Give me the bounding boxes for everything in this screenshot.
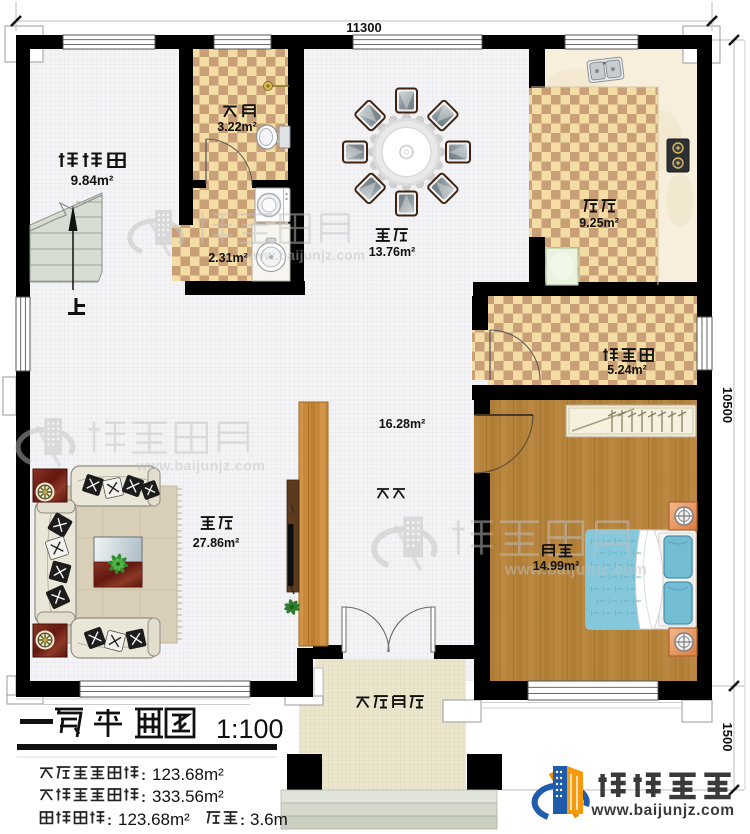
svg-text::: : xyxy=(141,789,146,806)
svg-text:9.84m²: 9.84m² xyxy=(71,173,114,188)
svg-text:13.76m²: 13.76m² xyxy=(369,245,416,259)
svg-text:3.6m: 3.6m xyxy=(250,810,288,829)
svg-text::: : xyxy=(107,812,112,829)
svg-text:3.22m²: 3.22m² xyxy=(217,120,257,134)
svg-text:1:100: 1:100 xyxy=(216,714,284,744)
svg-text:123.68m²: 123.68m² xyxy=(152,765,224,784)
svg-text:9.25m²: 9.25m² xyxy=(579,216,619,230)
svg-text::: : xyxy=(240,812,245,829)
svg-text::: : xyxy=(141,767,146,784)
svg-text:14.99m²: 14.99m² xyxy=(533,559,580,573)
svg-text:10500: 10500 xyxy=(720,387,735,423)
svg-text:123.68m²: 123.68m² xyxy=(118,810,190,829)
svg-text:5.24m²: 5.24m² xyxy=(607,363,647,377)
svg-text:16.28m²: 16.28m² xyxy=(379,417,426,431)
svg-text:11300: 11300 xyxy=(346,20,381,35)
svg-text:2.31m²: 2.31m² xyxy=(208,251,248,265)
svg-text:www.baijunjz.com: www.baijunjz.com xyxy=(590,802,734,819)
svg-text:1500: 1500 xyxy=(720,723,735,752)
svg-text:333.56m²: 333.56m² xyxy=(152,787,224,806)
svg-text:27.86m²: 27.86m² xyxy=(193,536,240,550)
